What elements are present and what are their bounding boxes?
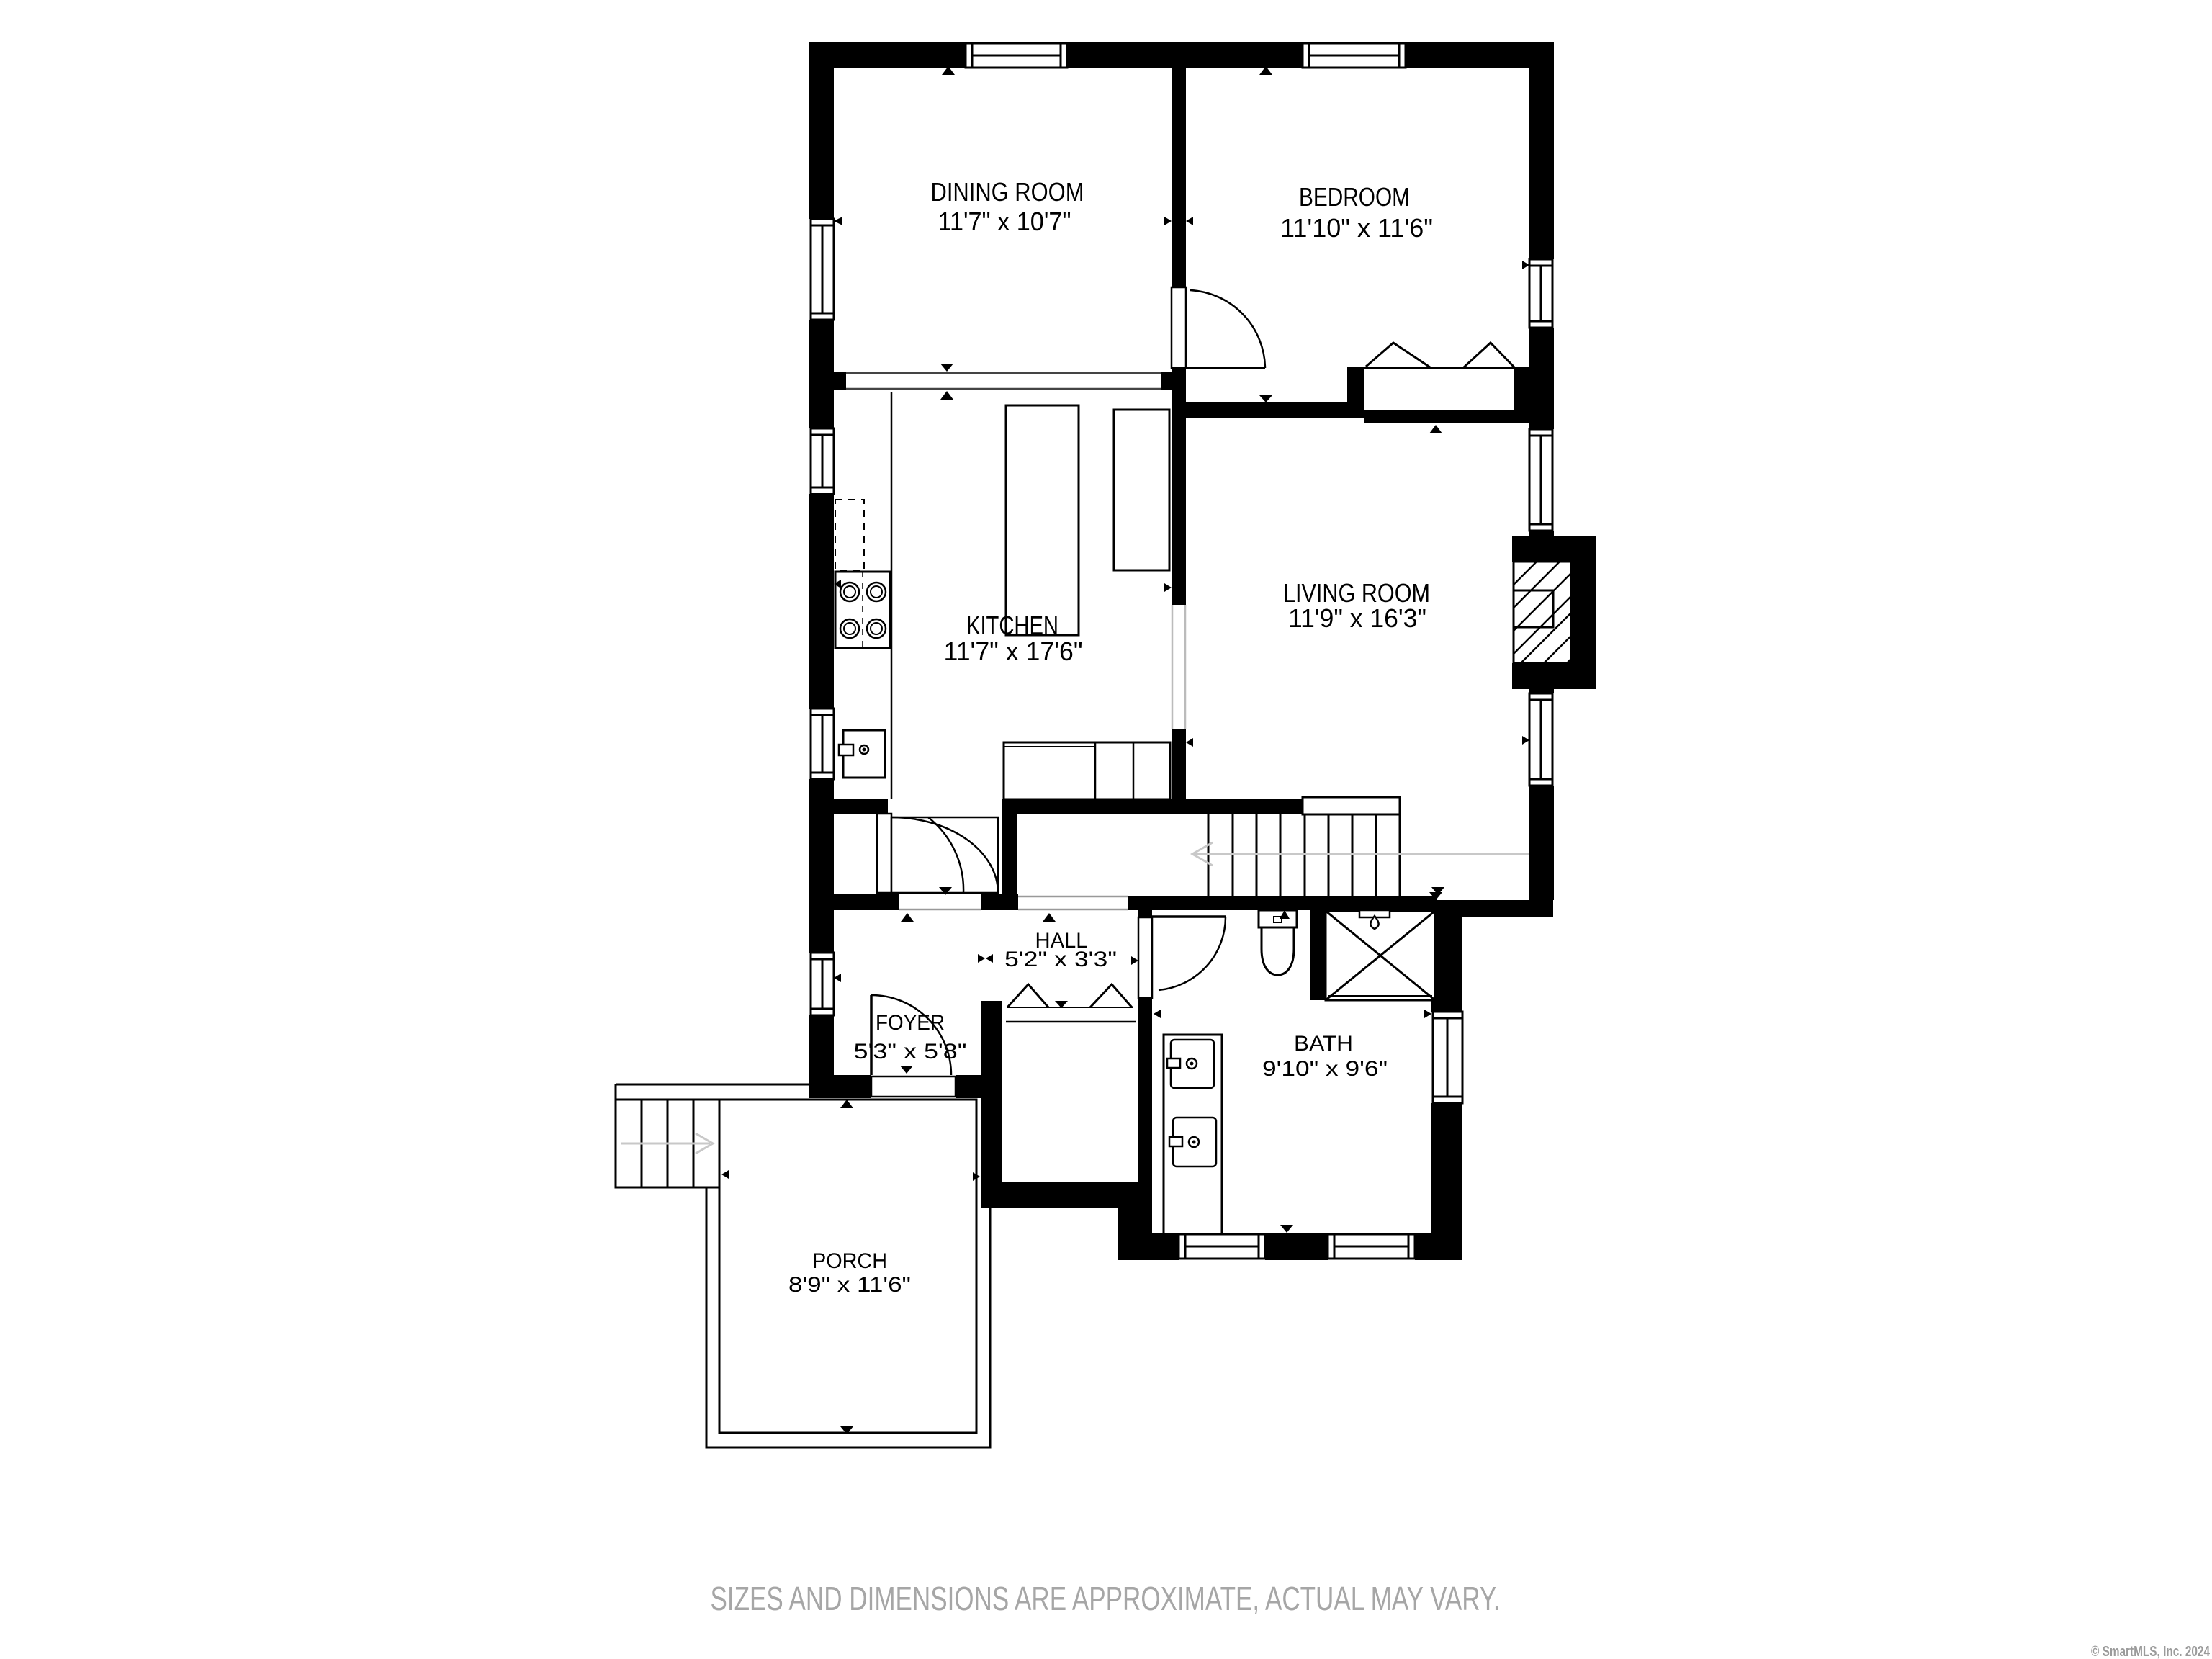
svg-text:11'9" x 16'3": 11'9" x 16'3" (1288, 603, 1426, 633)
svg-text:5'3" x 5'8": 5'3" x 5'8" (854, 1040, 967, 1064)
svg-text:DINING ROOM: DINING ROOM (931, 177, 1084, 207)
svg-text:8'9" x 11'6": 8'9" x 11'6" (788, 1273, 911, 1297)
svg-text:SIZES AND DIMENSIONS ARE APPRO: SIZES AND DIMENSIONS ARE APPROXIMATE, AC… (711, 1580, 1501, 1617)
svg-text:© SmartMLS, Inc. 2024: © SmartMLS, Inc. 2024 (2091, 1643, 2210, 1659)
svg-text:PORCH: PORCH (812, 1249, 887, 1273)
svg-text:BEDROOM: BEDROOM (1299, 182, 1410, 212)
svg-text:5'2" x 3'3": 5'2" x 3'3" (1004, 948, 1117, 971)
svg-text:BATH: BATH (1294, 1032, 1353, 1056)
svg-text:9'10" x 9'6": 9'10" x 9'6" (1262, 1057, 1388, 1081)
svg-text:11'7" x 17'6": 11'7" x 17'6" (944, 637, 1083, 666)
svg-text:KITCHEN: KITCHEN (966, 611, 1058, 640)
svg-text:11'10" x 11'6": 11'10" x 11'6" (1280, 213, 1433, 243)
svg-text:11'7" x 10'7": 11'7" x 10'7" (938, 207, 1071, 236)
svg-text:FOYER: FOYER (876, 1011, 945, 1035)
